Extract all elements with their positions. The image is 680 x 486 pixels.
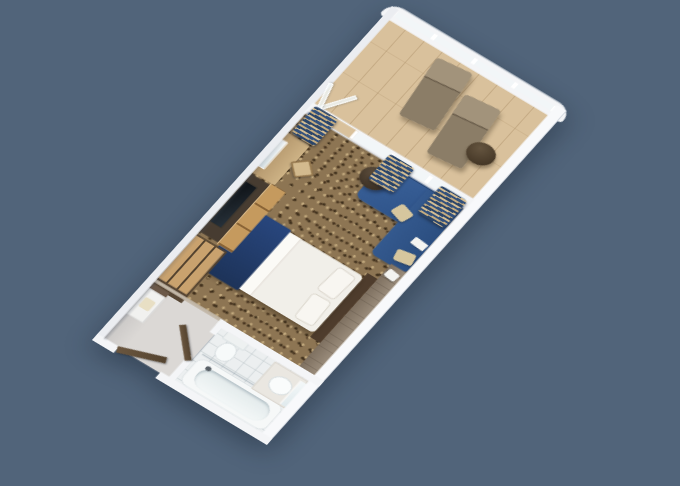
floorplan-canvas [0,0,680,486]
desk-chair [290,160,314,178]
stateroom-floorplan [87,6,567,450]
